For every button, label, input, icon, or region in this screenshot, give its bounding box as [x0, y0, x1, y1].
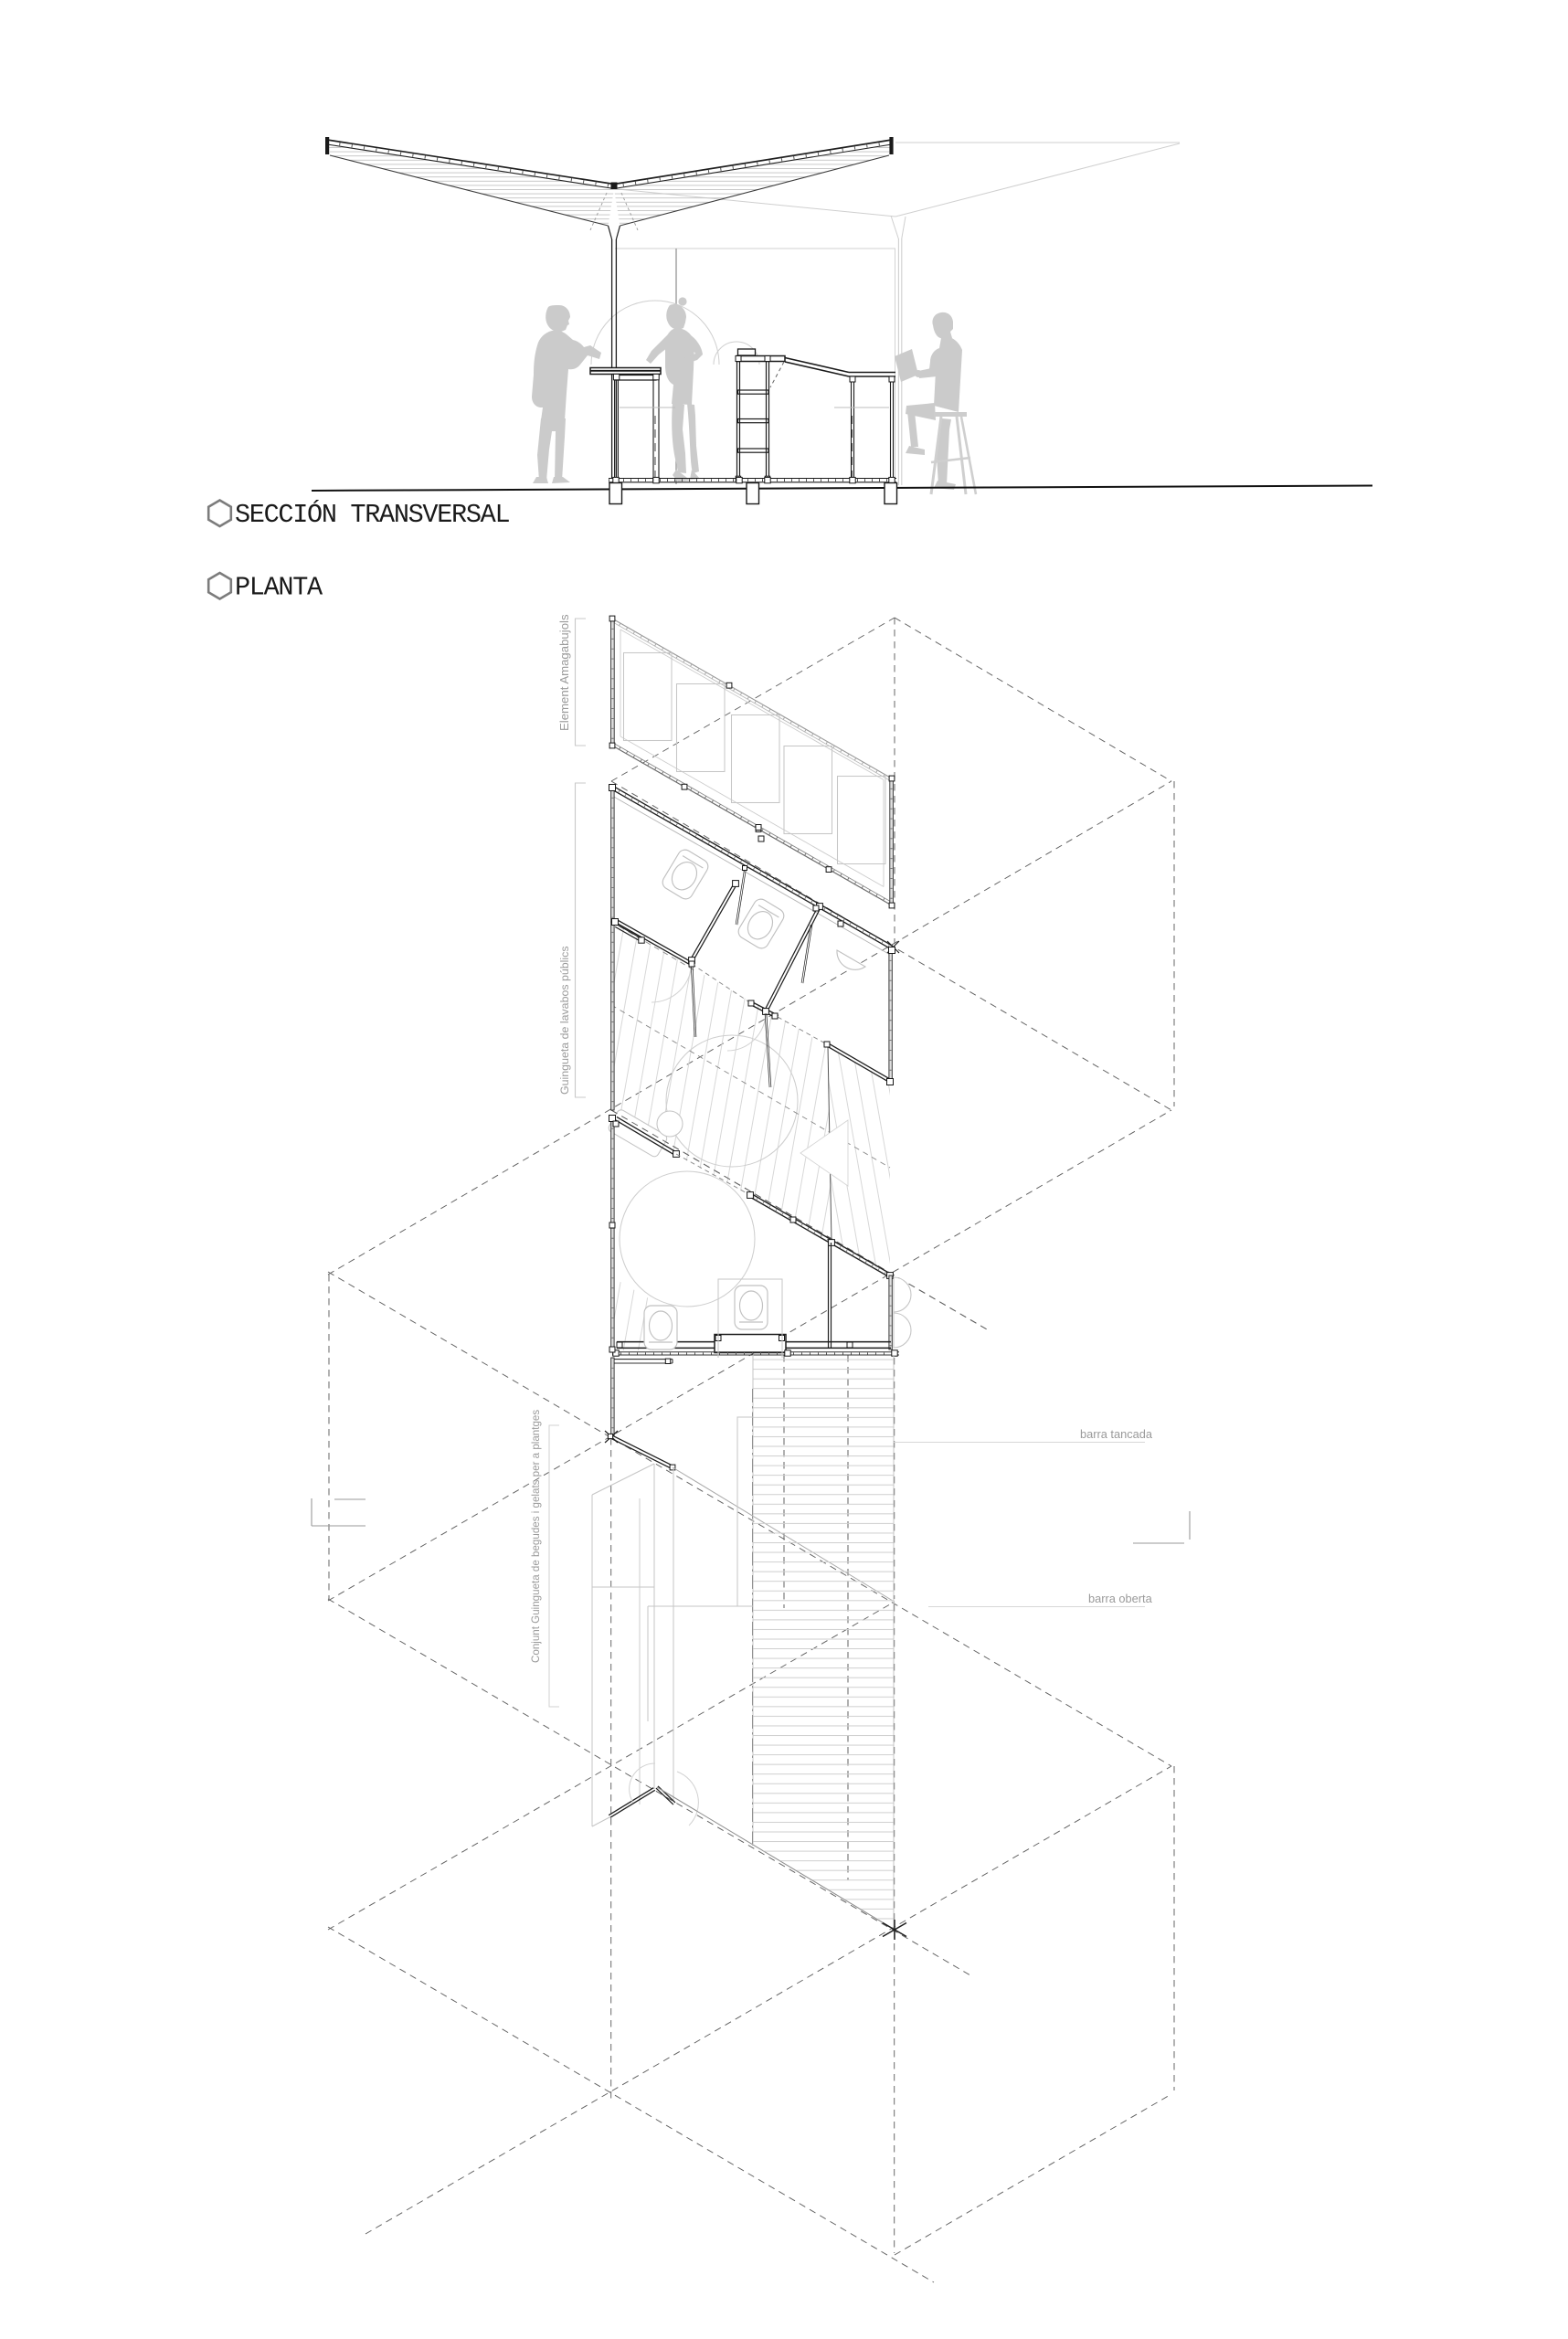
svg-text:Conjunt Guingueta de begudes i: Conjunt Guingueta de begudes i gelats pe…	[530, 1410, 542, 1663]
svg-text:Guingueta de lavabos públics: Guingueta de lavabos públics	[558, 946, 571, 1095]
svg-text:PLANTA: PLANTA	[235, 573, 323, 603]
svg-text:barra tancada: barra tancada	[1080, 1427, 1153, 1441]
svg-text:SECCIÓN TRANSVERSAL: SECCIÓN TRANSVERSAL	[235, 500, 509, 530]
svg-text:barra oberta: barra oberta	[1088, 1592, 1153, 1605]
svg-text:Element Amagabujols: Element Amagabujols	[557, 614, 571, 731]
